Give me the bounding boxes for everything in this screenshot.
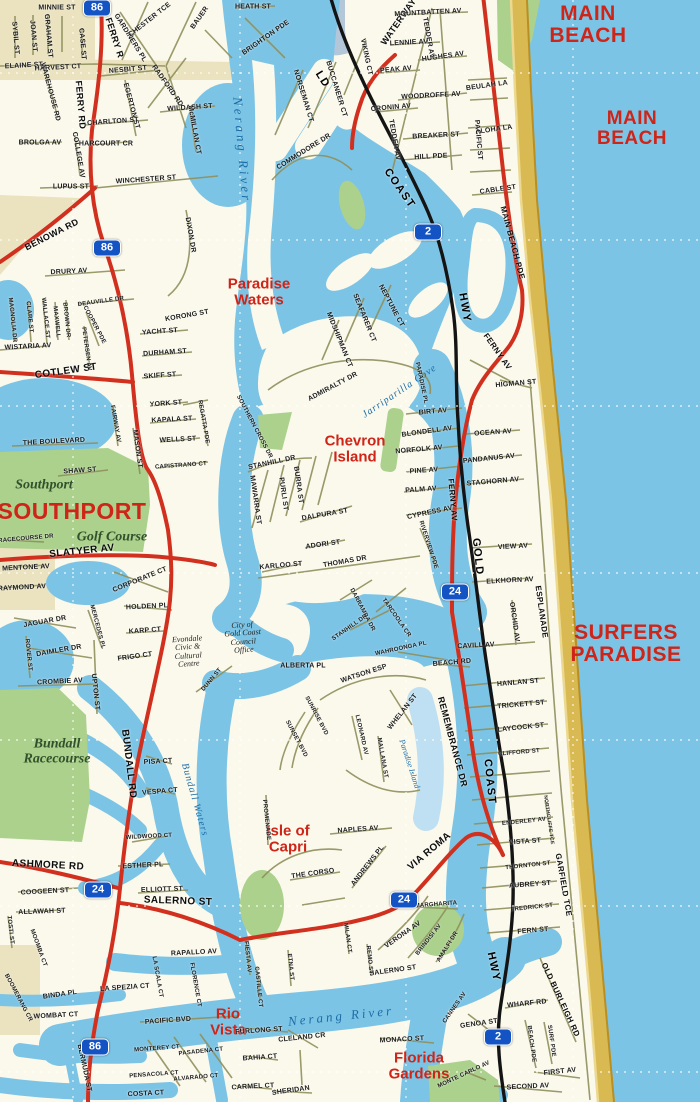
route-shield: 86 [93, 240, 121, 257]
street-map: MAIN BEACHMAIN BEACHSOUTHPORTSURFERS PAR… [0, 0, 700, 1102]
street-label: CROMBIE AV [37, 677, 83, 687]
street-label: LA SCALA CT [150, 956, 163, 998]
street-label: ESTHER PL [122, 861, 163, 870]
street-label: FREDRICK ST [511, 903, 554, 914]
street-label: PENSACOLA CT [129, 1070, 179, 1080]
street-label: SYBIL ST [10, 21, 20, 54]
street-label: VIEW AV [498, 543, 529, 552]
road-label: SALERNO ST [144, 896, 213, 909]
street-label: WOODROFFE AV [401, 91, 461, 101]
street-label: BAHIA CT [242, 1053, 277, 1063]
street-label: BRIGHTON PDE [241, 19, 291, 57]
street-label: MIDSHIPMAN CT [325, 311, 354, 368]
street-label: SEAFARER CT [351, 293, 377, 344]
road-label: SLATYER AV [49, 543, 115, 560]
street-label: FLORENCE CT [188, 962, 202, 1007]
street-label: COOGEEN ST [20, 887, 69, 897]
street-label: WELLS ST [159, 435, 196, 444]
street-label: COLLEGE AV [70, 131, 85, 178]
street-label: DURHAM ST [143, 348, 187, 358]
street-label: STANHILL DR [331, 613, 369, 642]
street-label: NAPLES AV [337, 825, 379, 835]
street-label: FERN ST [517, 926, 549, 936]
street-label: PASADENA CT [178, 1047, 223, 1058]
street-label: CLIFFORD ST [498, 748, 540, 758]
street-label: BUCCANEER CT [324, 60, 348, 118]
street-label: MARGHARITA [415, 900, 458, 909]
street-label: BINDA PL [42, 989, 77, 1001]
water-label: Bundall Waters [179, 762, 210, 838]
street-label: CHESTER TCE [127, 1, 172, 39]
street-label: STAGHORN AV [466, 476, 519, 488]
suburb-label: SOUTHPORT [0, 499, 146, 523]
street-label: AMALFI DR [436, 931, 460, 964]
street-label: SUNRISE BVD [303, 695, 329, 736]
street-label: ELLIOTT ST [141, 886, 183, 895]
street-label: VERONA AV [384, 920, 423, 950]
street-label: VIKING CT [359, 38, 374, 76]
street-label: NESBIT ST [109, 65, 148, 76]
street-label: LENNIE AV [390, 38, 429, 47]
route-shield: 86 [83, 0, 111, 17]
street-label: CASE ST [77, 28, 87, 60]
street-label: AUBREY ST [509, 880, 552, 890]
road-label: FERRY RD [73, 80, 87, 129]
street-label: ELKHORN AV [486, 576, 534, 586]
street-label: SOUTHERN CROSS DR [235, 394, 274, 459]
street-label: KARP CT [129, 626, 162, 636]
road-label: BUNDALL RD [119, 729, 138, 799]
street-label: CASTILLE CT [253, 966, 264, 1008]
road-label: VIA ROMA [406, 831, 453, 873]
street-label: JOAN ST [28, 20, 38, 52]
street-label: DALPURA ST [301, 507, 348, 522]
street-label: HIGMAN ST [495, 379, 537, 390]
street-label: ALLAWAH ST [18, 908, 66, 917]
street-label: FAIRWAY AV [109, 405, 122, 443]
street-label: ETNA ST [285, 953, 294, 980]
street-label: SUNSET BVD [284, 720, 309, 759]
street-label: SKIFF ST [143, 371, 176, 381]
street-label: HOLDEN PL [126, 602, 169, 612]
suburb-label: Isle of Capri [266, 823, 309, 855]
street-label: TEDDER AV [387, 119, 401, 161]
street-label: CARMEL CT [231, 1082, 274, 1092]
street-label: BEULAH LA [466, 79, 509, 92]
map-labels-layer: MAIN BEACHMAIN BEACHSOUTHPORTSURFERS PAR… [0, 0, 700, 1102]
street-label: MAWARRA ST [248, 475, 262, 525]
street-label: CAPISTRANO CT [155, 461, 207, 471]
street-label: BEACH RD [432, 658, 471, 669]
road-label: HWY [456, 292, 473, 324]
water-label: Nerang River [287, 1004, 394, 1029]
street-label: TARCOOLA CR [380, 597, 411, 638]
street-label: FIRST AV [543, 1067, 576, 1078]
street-label: FIESTA AV [242, 941, 252, 973]
place-label: Southport [15, 479, 73, 494]
street-label: BEACH PDE [525, 1025, 536, 1063]
street-label: REMO ST [364, 945, 373, 974]
street-label: LAYCOCK ST [497, 722, 544, 734]
street-label: MILAN CT [342, 923, 352, 954]
street-label: TOSTI ST [5, 915, 14, 944]
route-shield: 24 [84, 882, 112, 899]
water-label: Paradise Island [397, 739, 421, 790]
route-shield: 86 [81, 1039, 109, 1056]
street-label: TRICKETT ST [497, 699, 545, 710]
suburb-label: Chevron Island [325, 433, 386, 465]
street-label: PANDANUS AV [463, 453, 516, 466]
place-label: Bundall Racecourse [24, 737, 91, 766]
street-label: PISA CT [143, 758, 172, 767]
street-label: CRONIN AV [371, 103, 412, 114]
street-label: PURLI ST [277, 477, 289, 511]
street-label: ALBERTA PL [280, 662, 326, 669]
street-label: WHELAN ST [387, 693, 420, 732]
street-label: CABLE ST [479, 184, 516, 196]
street-label: WHARF RD [507, 998, 547, 1009]
street-label: THE BOULEVARD [23, 437, 86, 448]
street-label: McMILLAN CT [186, 105, 202, 155]
street-label: FRIGO CT [117, 651, 153, 663]
street-label: ORCHID AV [508, 602, 521, 643]
street-label: CORPORATE CT [112, 566, 168, 594]
street-label: NORSEMAN CT [292, 69, 315, 123]
road-label: COAST [481, 759, 497, 806]
street-label: NORFOLK AV [395, 444, 443, 455]
street-label: KAPALA ST [151, 415, 192, 424]
street-label: SHERIDAN [272, 1085, 311, 1098]
street-label: ADORI ST [305, 539, 341, 551]
street-label: MAXWELL [51, 306, 61, 338]
street-label: DIXON DR [183, 217, 196, 254]
street-label: NEPTUNE CT [377, 284, 405, 329]
road-label: HWY [484, 951, 502, 983]
street-label: GRAHAM ST [42, 14, 53, 59]
street-label: MONTEREY CT [134, 1044, 180, 1053]
street-label: SURF PDE [546, 1025, 557, 1058]
street-label: RIVERVIEW PDE [417, 520, 438, 570]
street-label: RAYMOND AV [0, 583, 46, 593]
street-label: BROWN DR [61, 302, 71, 338]
street-label: THE CORSO [291, 867, 335, 880]
street-label: PINE AV [409, 466, 438, 475]
street-label: SECOND AV [507, 1082, 550, 1092]
street-label: DAIMLER DR [36, 643, 83, 658]
street-label: BOOMERANG CR [3, 973, 33, 1023]
road-label: MAIN BEACH PDE [498, 206, 526, 281]
street-label: JAGUAR DR [23, 615, 67, 630]
street-label: THOMAS DR [323, 555, 368, 570]
suburb-label: Paradise Waters [228, 276, 291, 308]
street-label: ENDERLEY AV [502, 817, 547, 828]
street-label: VESPA CT [142, 787, 178, 797]
street-label: MENTONE AV [2, 563, 50, 573]
street-label: SALERNO ST [369, 964, 417, 978]
road-label: ESPLANADE [533, 585, 549, 639]
street-label: PALM AV [405, 485, 437, 495]
route-shield: 2 [484, 1029, 512, 1046]
route-shield: 2 [414, 224, 442, 241]
place-label: City of Gold Coast Council Office [224, 620, 263, 656]
street-label: MAGNOLIA DR [7, 297, 18, 342]
street-label: HANLAN ST [497, 678, 540, 689]
street-label: ANDREWS PL [350, 844, 386, 887]
street-label: CLELAND CR [278, 1032, 326, 1044]
street-label: DRURY AV [50, 267, 87, 276]
street-label: BREAKER ST [412, 131, 460, 141]
street-label: BROLGA AV [19, 139, 62, 146]
street-label: MINNIE ST [38, 4, 75, 11]
road-label: GOLD [469, 538, 484, 577]
street-label: UPTON ST [89, 673, 100, 710]
road-label: ASHMORE RD [12, 859, 85, 873]
street-label: MASON ST [131, 429, 144, 468]
street-label: WAHROONGA PL [375, 640, 428, 657]
water-label: Nerang River [231, 96, 254, 203]
road-label: GARFIELD TCE [553, 853, 572, 917]
street-label: YACHT ST [142, 327, 178, 337]
street-label: CYPRESS AV [407, 505, 454, 522]
street-label: ALVARADO CT [173, 1073, 218, 1083]
street-label: REGATTA PDE [196, 400, 210, 445]
road-label: BENOWA RD [23, 217, 80, 252]
street-label: VISTA ST [509, 837, 542, 847]
street-label: RAPALLO AV [171, 948, 218, 958]
street-label: MALLANA ST [375, 737, 388, 778]
street-label: COSTA CT [128, 1089, 165, 1098]
suburb-label: SURFERS PARADISE [571, 622, 682, 666]
street-label: MONACO ST [380, 1035, 425, 1045]
street-label: CANNES AV [442, 991, 468, 1024]
street-label: CHARLTON ST [87, 117, 139, 128]
street-label: WILDWOOD CT [126, 833, 173, 842]
street-label: WINCHESTER ST [116, 174, 177, 186]
street-label: WATSON ESP [340, 663, 388, 685]
street-label: HARCOURT CR [79, 140, 133, 147]
street-label: WOMBAT CT [33, 1011, 78, 1021]
street-label: WALLACE ST [40, 297, 51, 338]
street-label: YORK ST [150, 399, 183, 409]
street-label: CLARE ST [24, 301, 34, 333]
street-label: BAUER [190, 5, 211, 30]
street-label: SHAW ST [63, 466, 97, 476]
street-label: THORNTON ST [505, 860, 551, 871]
street-label: ADMIRALTY DR [307, 371, 359, 403]
street-label: BLONDELL AV [401, 425, 453, 439]
street-label: LA SPEZIA CT [100, 983, 150, 994]
street-label: KARLOO ST [259, 560, 303, 571]
street-label: HEATH ST [235, 3, 271, 10]
street-label: ROVER ST [23, 639, 33, 672]
suburb-label: MAIN BEACH [549, 3, 626, 47]
street-label: PACIFIC BVD [145, 1016, 192, 1027]
place-label: Evondale Civic & Cultural Centre [172, 634, 204, 670]
street-label: COMMODORE DR [276, 132, 333, 171]
street-label: MERCEDES PL [88, 604, 106, 650]
street-label: PACIFIC ST [473, 120, 484, 161]
suburb-label: MAIN BEACH [597, 109, 667, 149]
suburb-label: Florida Gardens [389, 1050, 450, 1082]
road-label: FERNY AV [446, 478, 458, 521]
route-shield: 24 [390, 892, 418, 909]
street-label: LUPUS ST [53, 183, 89, 190]
street-label: MOOMBA CT [28, 928, 47, 967]
street-label: BIRT AV [418, 407, 447, 417]
street-label: PEAK AV [380, 65, 412, 75]
road-label: REMEMBRANCE DR [435, 696, 468, 788]
road-label: COAST [381, 167, 417, 211]
street-label: BURRA ST [292, 466, 304, 504]
street-label: WISTARIA AV [4, 342, 51, 352]
road-label: FERNY AV [481, 332, 512, 372]
street-label: CAVILL AV [457, 641, 495, 650]
street-label: RADFORD RD [150, 64, 184, 108]
route-shield: 24 [441, 584, 469, 601]
street-label: HILL PDE [414, 152, 448, 161]
street-label: OCEAN AV [474, 428, 512, 438]
street-label: KORONG ST [165, 309, 210, 324]
street-label: DUNN ST [201, 667, 224, 693]
street-label: LEONARD AV [353, 714, 368, 755]
street-label: PROMENADE [261, 799, 272, 840]
street-label: RACECOURSE DR [0, 533, 54, 544]
